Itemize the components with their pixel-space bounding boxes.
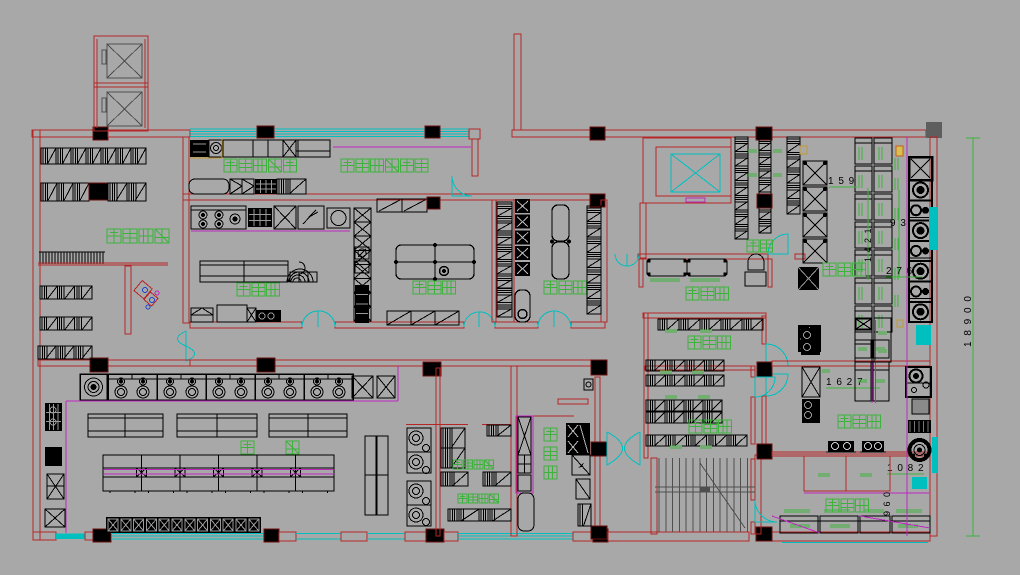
svg-text:2 7 6 6: 2 7 6 6 <box>886 266 924 277</box>
svg-text:1 8 9 0 0: 1 8 9 0 0 <box>963 295 974 347</box>
svg-text:1 5 9: 1 5 9 <box>828 176 855 187</box>
svg-text:9 3: 9 3 <box>890 218 907 229</box>
svg-text:1 0 8 2: 1 0 8 2 <box>887 463 925 474</box>
svg-text:1 6 2 7: 1 6 2 7 <box>826 377 864 388</box>
svg-text:1 4 2 1: 1 4 2 1 <box>863 227 873 262</box>
